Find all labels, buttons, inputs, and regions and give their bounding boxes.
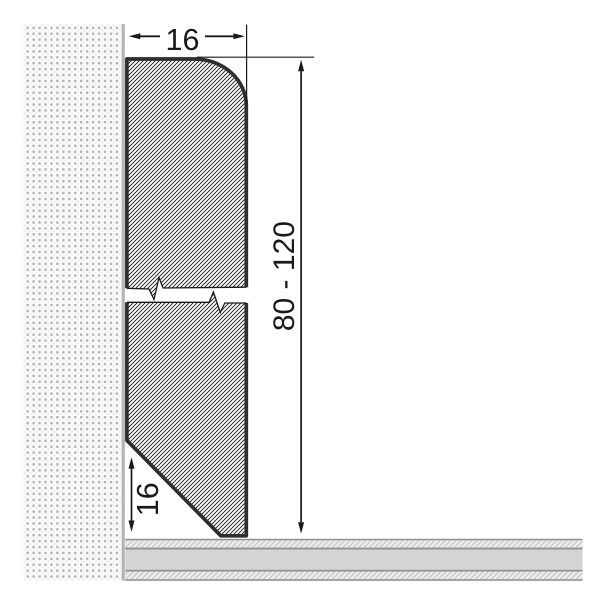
svg-text:16: 16: [166, 23, 200, 57]
svg-text:16: 16: [131, 482, 165, 516]
svg-text:80 - 120: 80 - 120: [268, 221, 301, 331]
